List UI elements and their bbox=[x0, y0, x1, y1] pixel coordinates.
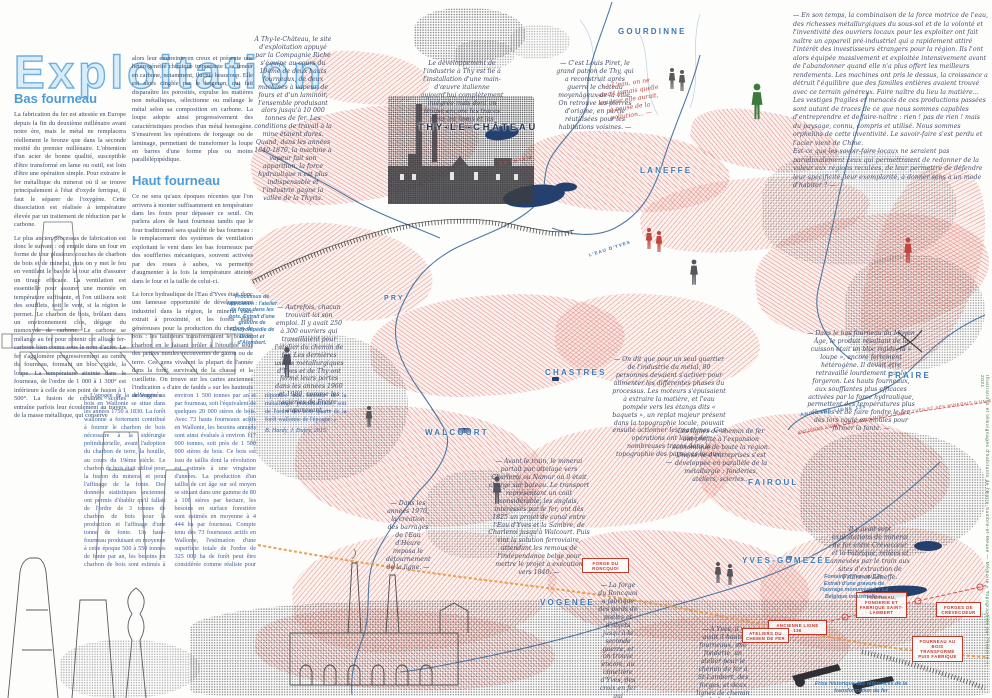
line-label-la-thyria: LA THYRIA bbox=[500, 155, 534, 166]
bas-paragraph-1: La fabrication du fer est attestée en Eu… bbox=[14, 111, 126, 229]
annotation-main-doeuvre: Le développement de l'industrie à Thy es… bbox=[420, 60, 504, 131]
annotation-bas-fourneau-loupe: — Dans le bas fourneau du Moyen Âge, le … bbox=[806, 330, 916, 433]
annotation-barrages: — Dans les années 1970, la création des … bbox=[386, 500, 430, 571]
place-label-gourdinne: GOURDINNE bbox=[618, 27, 687, 36]
annotation-forge-roncquoi: — La forge du Roncquoi a fabriqué des pi… bbox=[598, 582, 638, 698]
caption-fontaine-yves: Fontaine d'Yves au 17e. Extrait d'une gr… bbox=[818, 574, 890, 600]
caption-frise-historique: Frise historique des références de la tr… bbox=[796, 681, 926, 694]
red-label-fourneau-bois: Fourneau au bois transformé puis fabriqu… bbox=[912, 636, 963, 662]
red-label-forge-roncquoi: Forge du Roncquoi bbox=[582, 558, 629, 573]
annotation-dernieres-usines: — Autrefois, chacun trouvait ici son emp… bbox=[274, 304, 344, 415]
place-label-chastres: CHASTRES bbox=[545, 368, 607, 377]
annotation-lignes-chemin-fer: Les lignes de chemin de fer ont profité … bbox=[672, 428, 770, 484]
place-label-thy-le-chateau: THY-LE-CHÂTEAU bbox=[418, 122, 538, 133]
bas-paragraph-3: alors leur empreinte en creux et présent… bbox=[132, 55, 253, 165]
manifesto-text: — En son temps, la combinaison de la for… bbox=[793, 12, 989, 191]
heading-bas-fourneau: Bas fourneau bbox=[14, 90, 126, 107]
place-label-fraire: FRAIRE bbox=[888, 371, 931, 380]
line-label-eau-d-yves: L'EAU D'YVES bbox=[588, 239, 631, 257]
heading-haut-fourneau: Haut fourneau bbox=[132, 172, 253, 189]
article-column-1: Bas fourneau La fabrication du fer est a… bbox=[14, 90, 126, 425]
article-column-2: alors leur empreinte en creux et présent… bbox=[132, 55, 253, 406]
annotation-thy-site: À Thy-le-Château, le site d'exploitation… bbox=[253, 36, 333, 203]
place-label-laneffe: LANEFFE bbox=[640, 166, 692, 175]
place-label-pry: PRY bbox=[384, 295, 405, 302]
place-label-walcourt: WALCOURT bbox=[425, 428, 489, 437]
place-label-vogenee: VOGENÉE bbox=[540, 598, 595, 607]
quote-attribution: B. Hardy, J. Dufey, 2015. bbox=[265, 427, 347, 435]
caption-processus: Processus de fabrication : l'atelier de … bbox=[226, 294, 278, 347]
place-label-fairoul: FAIROUL bbox=[748, 478, 799, 487]
poster-canvas: ANCIENNE LIGNE 136 — ACHEMINER L'EAU D'Y… bbox=[0, 0, 992, 698]
quote-text: « L'apogée de la sidérurgie au bois en W… bbox=[84, 392, 347, 568]
red-label-forges-crevecoeur: Forges de Crèvecoeur bbox=[936, 602, 981, 617]
haut-paragraph-1: Ce ne sera qu'aux époques récentes que l… bbox=[132, 193, 253, 286]
place-label-yves-gomezee: YVES-GOMEZÉE bbox=[742, 556, 832, 565]
red-label-ateliers-chemin-fer: Ateliers du chemin de fer bbox=[742, 628, 789, 643]
quote-block: « L'apogée de la sidérurgie au bois en W… bbox=[84, 392, 256, 572]
credit-line: Illustrations et témoignages d'habitants… bbox=[979, 375, 989, 675]
annotation-pollution: — L'eau, on ne savait jamais quelle coul… bbox=[596, 76, 663, 124]
annotation-transport-canal: — Avant le train, le minerai partait par… bbox=[488, 458, 590, 577]
